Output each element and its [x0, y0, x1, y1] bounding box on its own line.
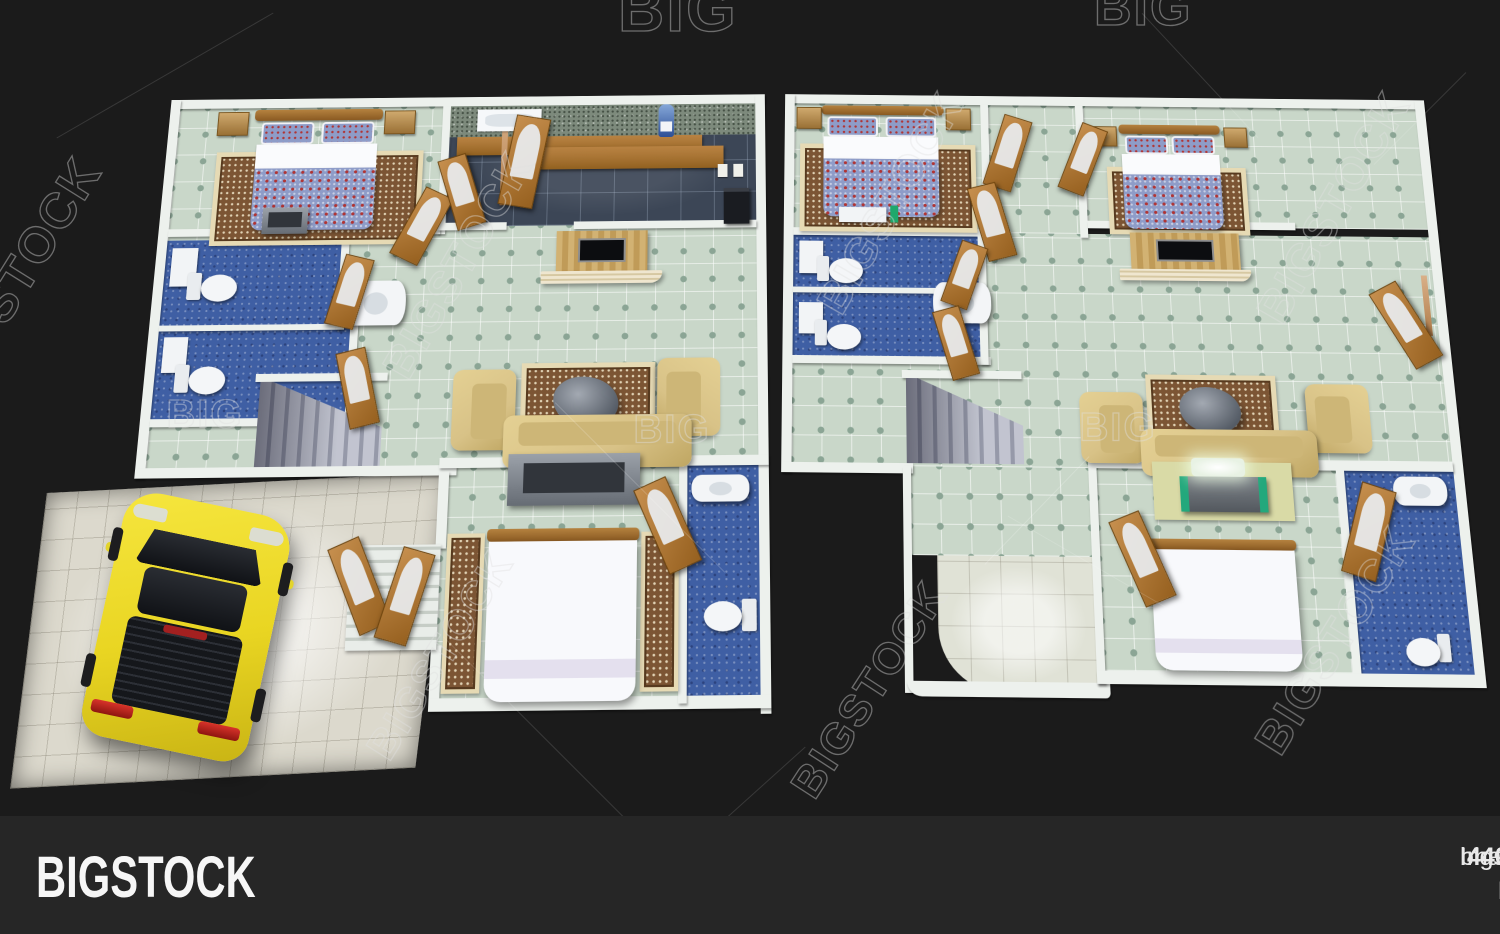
porch-wall	[907, 681, 1111, 699]
watermark-text: BIG	[1079, 406, 1156, 451]
watermark-text: BIG	[618, 0, 738, 46]
vanity-sink	[1392, 476, 1449, 506]
nightstand	[384, 110, 416, 134]
toilet-tank	[742, 599, 757, 632]
bed-pillow	[1171, 136, 1215, 155]
tv-console	[507, 453, 640, 506]
kitchen-appliance	[724, 188, 750, 224]
tv-wall-panel	[1130, 232, 1242, 271]
watermark-text: BIG	[633, 408, 710, 453]
nightstand	[217, 112, 250, 136]
bed-pillow	[1125, 136, 1169, 155]
porch-floor	[937, 555, 1102, 694]
toilet-tank	[186, 273, 202, 300]
bed-sheet	[1122, 154, 1221, 175]
tv-wall-panel	[556, 230, 648, 273]
nightstand	[1223, 127, 1248, 147]
car-wheel	[80, 653, 97, 688]
wall	[678, 466, 687, 704]
nightstand	[796, 107, 821, 129]
switch-plate	[718, 164, 728, 177]
tv-shelf	[540, 270, 662, 284]
lamp	[1191, 458, 1246, 477]
bed-headboard	[255, 109, 384, 121]
bigstock-logo: BIGSTOCK	[36, 844, 256, 911]
double-bed	[1123, 174, 1225, 229]
watermark-text: STOCK	[0, 147, 113, 334]
car-wheel	[107, 527, 124, 562]
bigstock-footer-bar: BIGSTOCK Image ID: 440873393 bigstock.co…	[0, 816, 1500, 934]
white-bed	[1150, 549, 1304, 672]
watermark-text: BIG	[1094, 0, 1192, 38]
water-dispenser	[658, 104, 674, 137]
kitchen-bar-counter	[540, 146, 724, 170]
website-url: bigstock.com	[1460, 840, 1500, 874]
switch-plate	[733, 164, 743, 177]
watermark-text: BIG	[166, 393, 243, 438]
media-unit	[1179, 476, 1268, 512]
tv-shelf	[1120, 269, 1252, 282]
toilet-tank	[173, 365, 190, 393]
bed-pillow	[261, 122, 315, 144]
wall	[781, 462, 913, 474]
bed-sheet	[255, 143, 378, 168]
vanity-sink	[691, 474, 749, 502]
tv	[261, 207, 308, 234]
wall	[134, 465, 457, 479]
toilet-tank	[815, 320, 827, 346]
stock-photo-canvas: BIG BIG STOCK BIGSTOCK BIGSTOCK BIGSTOCK…	[0, 0, 1500, 934]
bed-pillow	[321, 122, 375, 144]
toilet	[827, 324, 861, 350]
bed-pillow	[827, 116, 878, 137]
bed-headboard	[1118, 125, 1219, 135]
